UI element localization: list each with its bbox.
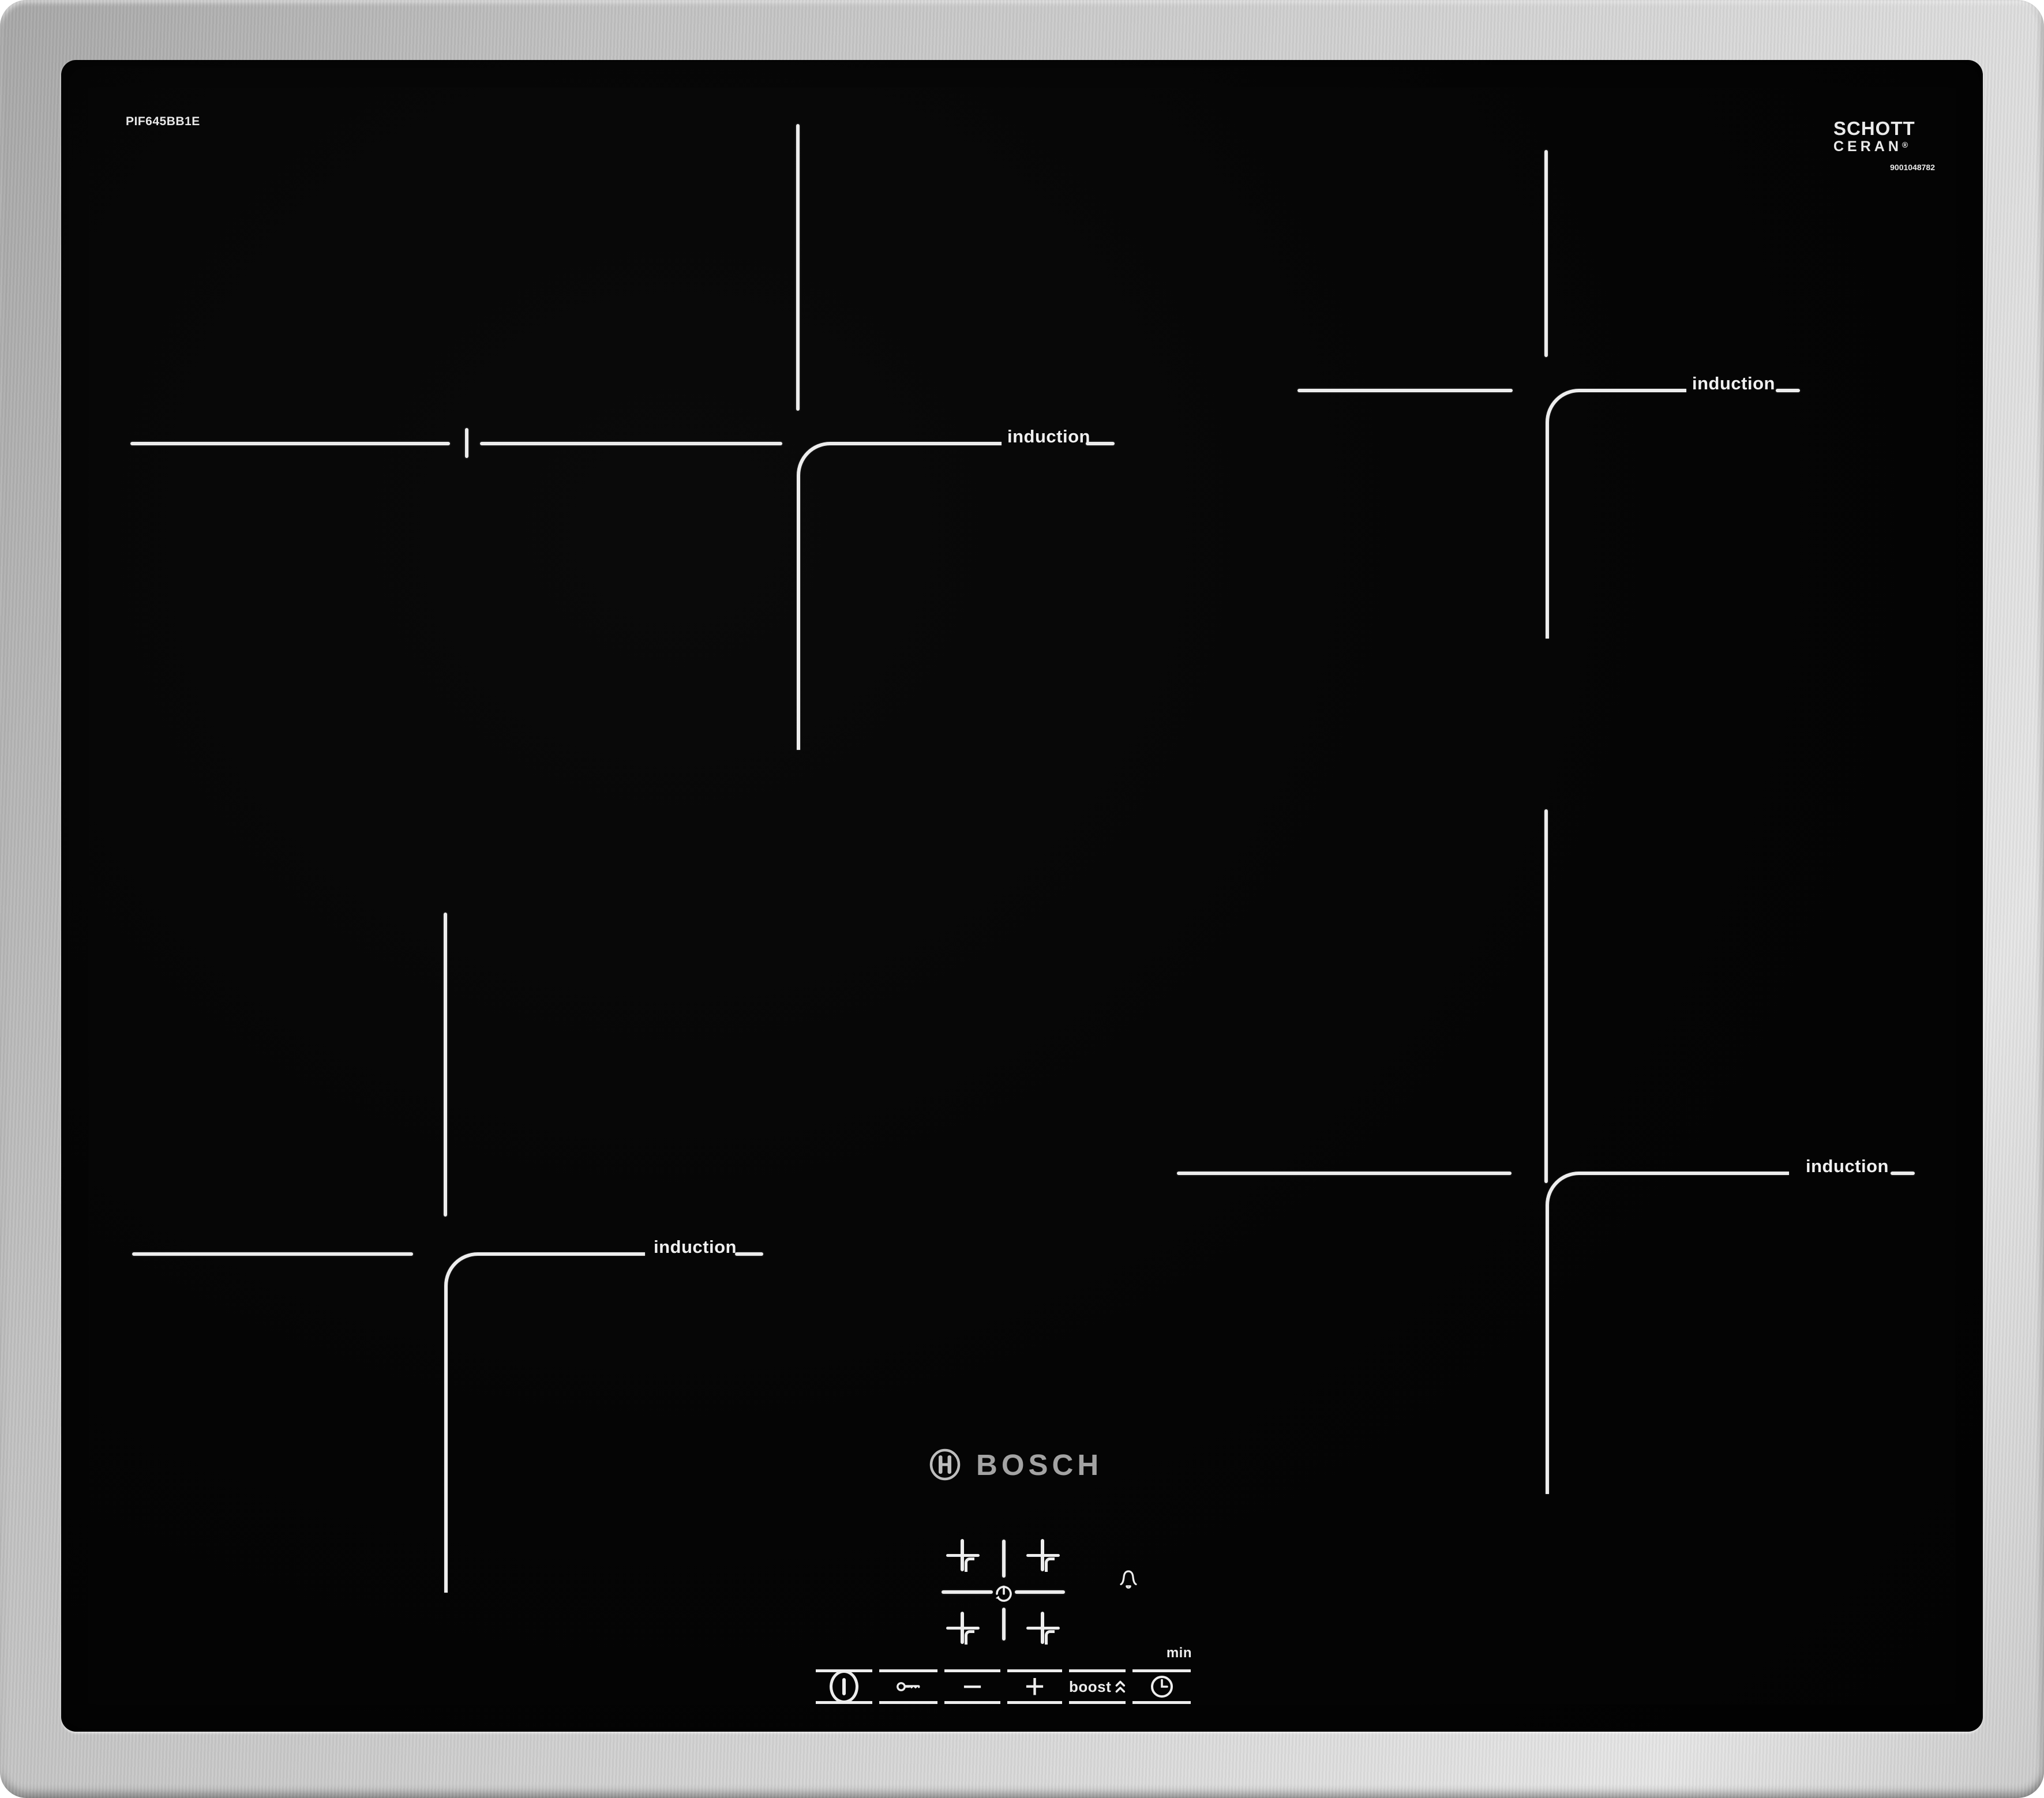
ceran-text: CERAN® — [1833, 140, 1937, 154]
zone-bottom-left-trailing-dash — [735, 1252, 763, 1256]
mini-cross-corner — [965, 1557, 974, 1572]
glass-print-number: 9001048782 — [1833, 163, 1937, 171]
zone-bottom-right-left-arm-line — [1177, 1172, 1512, 1175]
induction-hob-photo: PIF645BB1E SCHOTT CERAN® 9001048782 indu… — [0, 0, 2044, 1798]
rotate-timer-icon — [991, 1579, 1017, 1606]
timer-display-cross-line — [942, 1590, 993, 1594]
zone-top-left-left-arm-line — [130, 442, 450, 445]
timer-minutes-label: min — [1142, 1646, 1192, 1660]
timer-display-cross-line — [1002, 1540, 1006, 1578]
zone-top-left-left-arm-line — [480, 442, 782, 445]
power-icon-bar — [842, 1678, 846, 1695]
bosch-logo: BOSCH — [929, 1448, 1102, 1481]
zone-label-bottom-right: induction — [1806, 1157, 1889, 1175]
zone-select-key-top-left[interactable] — [946, 1539, 980, 1571]
schott-text: SCHOTT — [1833, 119, 1937, 138]
registered-trademark-icon: ® — [1902, 140, 1908, 149]
zone-top-right-top-arm-line — [1544, 150, 1548, 357]
bell-icon — [1119, 1569, 1138, 1590]
clock-icon — [1149, 1674, 1175, 1699]
zone-bottom-left-left-arm-line — [132, 1252, 413, 1256]
bosch-anchor-emblem-icon — [929, 1448, 961, 1481]
zone-top-right-left-arm-line — [1297, 389, 1513, 392]
model-number-label: PIF645BB1E — [126, 115, 200, 127]
power-icon — [830, 1670, 858, 1703]
zone-top-left-pan-marker-tick — [465, 428, 468, 458]
child-lock-button[interactable] — [879, 1669, 937, 1704]
mini-cross-corner — [965, 1630, 974, 1645]
timer-display-cross-line — [1002, 1608, 1006, 1641]
zone-bottom-left-top-arm-line — [444, 913, 447, 1217]
boost-button[interactable]: boost — [1069, 1669, 1126, 1704]
mini-cross-corner — [1045, 1630, 1055, 1645]
zone-label-bottom-left: induction — [654, 1238, 737, 1256]
zone-bottom-right-trailing-dash — [1891, 1172, 1915, 1175]
zone-bottom-right-corner-line — [1546, 1172, 1789, 1494]
ceran-word: CERAN — [1833, 138, 1902, 155]
zone-top-right-corner-line — [1546, 389, 1686, 639]
timer-button[interactable] — [1132, 1669, 1191, 1704]
zone-top-right-trailing-dash — [1776, 389, 1800, 392]
boost-label: boost — [1069, 1679, 1111, 1694]
decrease-button[interactable]: − — [944, 1669, 1000, 1704]
double-chevron-up-icon — [1115, 1678, 1126, 1695]
zone-select-key-top-right[interactable] — [1026, 1539, 1060, 1571]
zone-select-key-bottom-left[interactable] — [946, 1612, 980, 1644]
zone-select-key-bottom-right[interactable] — [1026, 1612, 1060, 1644]
minus-icon: − — [962, 1669, 982, 1704]
power-button[interactable] — [816, 1669, 872, 1704]
mini-cross-line — [1026, 1627, 1060, 1630]
mini-cross-corner — [1045, 1557, 1055, 1572]
zone-top-left-top-arm-line — [796, 124, 800, 411]
timer-display-cross-line — [1015, 1590, 1065, 1594]
mini-cross-line — [946, 1627, 980, 1630]
mini-cross-line — [946, 1554, 980, 1557]
schott-ceran-logo: SCHOTT CERAN® 9001048782 — [1833, 119, 1937, 171]
bosch-wordmark: BOSCH — [976, 1450, 1102, 1480]
touch-control-row: − + boost — [816, 1669, 1191, 1704]
zone-bottom-left-corner-line — [444, 1252, 645, 1593]
zone-top-left-corner-line — [797, 442, 1002, 750]
zone-bottom-right-top-arm-line — [1544, 809, 1548, 1183]
zone-label-top-left: induction — [1007, 427, 1090, 445]
key-icon — [896, 1679, 921, 1694]
increase-button[interactable]: + — [1007, 1669, 1062, 1704]
plus-icon: + — [1025, 1669, 1045, 1704]
zone-top-left-trailing-dash — [1086, 442, 1115, 445]
mini-cross-line — [1026, 1554, 1060, 1557]
zone-label-top-right: induction — [1692, 374, 1775, 392]
